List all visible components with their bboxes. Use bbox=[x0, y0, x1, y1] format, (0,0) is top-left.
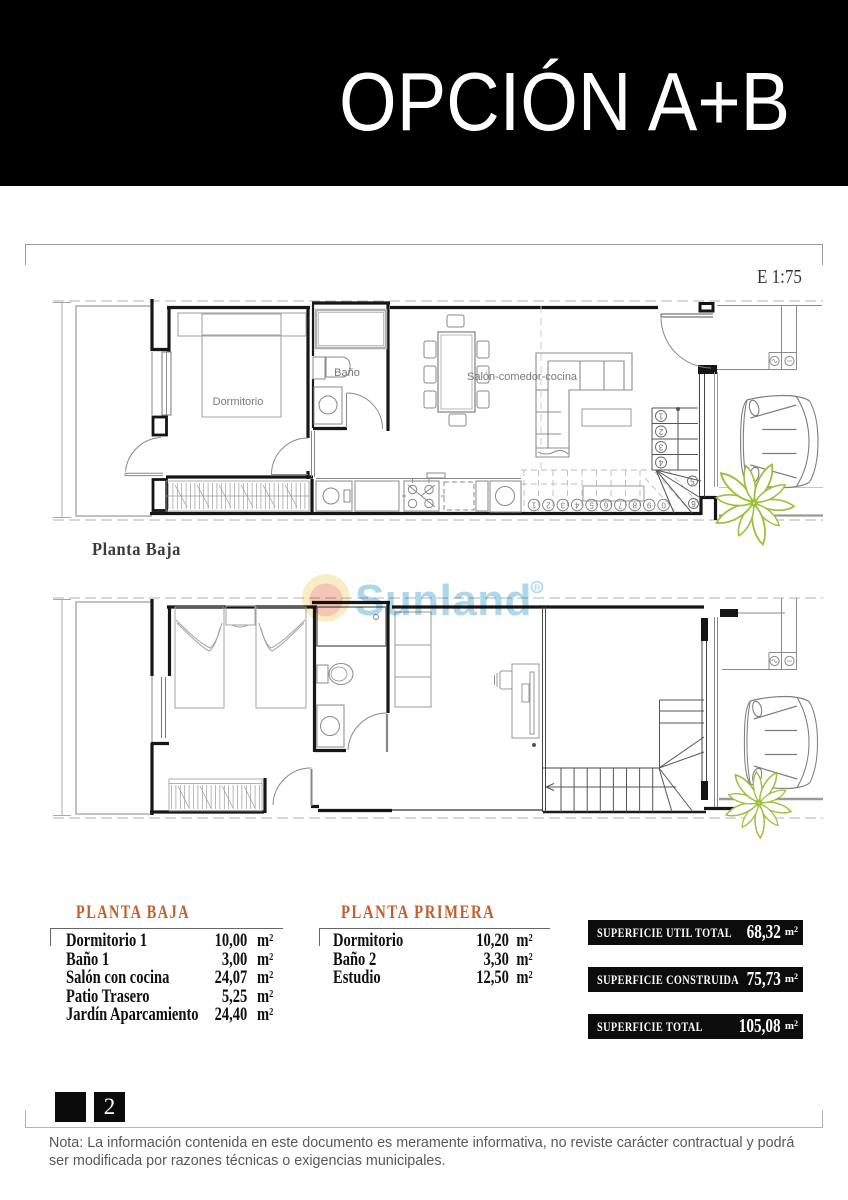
svg-text:4: 4 bbox=[574, 500, 579, 509]
svg-text:2: 2 bbox=[546, 500, 551, 509]
svg-text:8: 8 bbox=[632, 500, 637, 509]
svg-text:0: 0 bbox=[661, 500, 666, 509]
svg-text:5: 5 bbox=[690, 476, 695, 485]
svg-text:6: 6 bbox=[691, 499, 696, 508]
svg-text:7: 7 bbox=[618, 500, 623, 509]
svg-text:Salón-comedor-cocina: Salón-comedor-cocina bbox=[467, 371, 578, 383]
svg-text:5: 5 bbox=[589, 500, 594, 509]
svg-text:3: 3 bbox=[658, 442, 663, 451]
svg-text:R: R bbox=[534, 584, 540, 593]
svg-text:1: 1 bbox=[531, 500, 536, 509]
svg-text:9: 9 bbox=[646, 500, 651, 509]
svg-text:2: 2 bbox=[658, 427, 663, 436]
svg-text:6: 6 bbox=[603, 500, 608, 509]
svg-text:1: 1 bbox=[658, 411, 663, 420]
svg-text:Baño: Baño bbox=[334, 367, 360, 379]
svg-text:4: 4 bbox=[658, 458, 663, 467]
svg-text:Sunland: Sunland bbox=[355, 576, 532, 625]
svg-text:3: 3 bbox=[560, 500, 565, 509]
svg-text:Dormitorio: Dormitorio bbox=[213, 396, 264, 408]
